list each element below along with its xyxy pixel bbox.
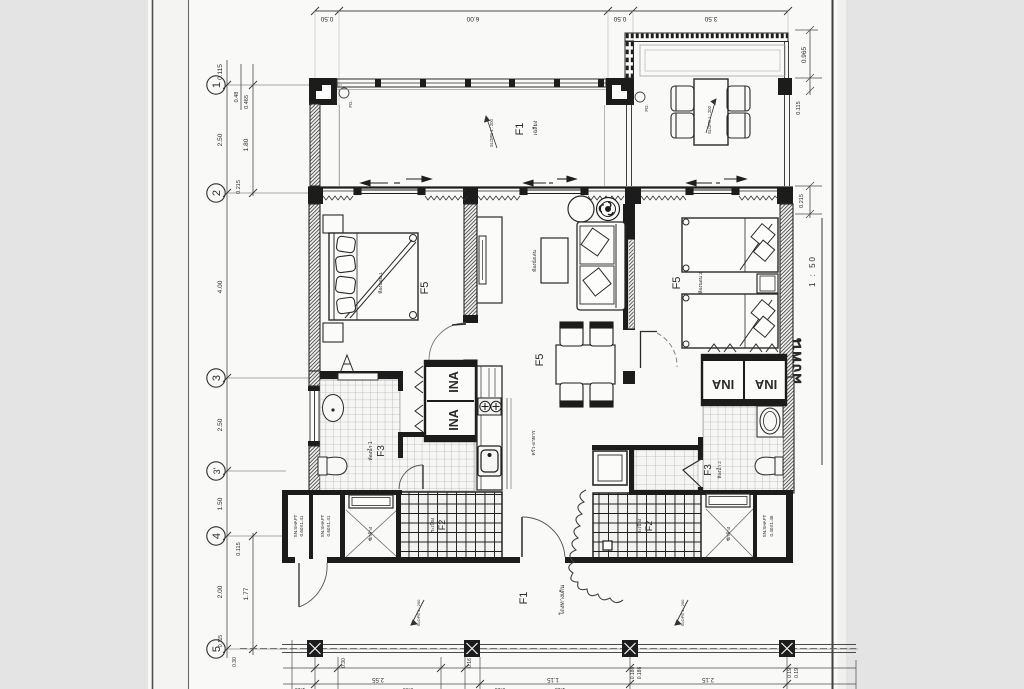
- svg-text:0.215: 0.215: [236, 180, 242, 194]
- svg-text:INA: INA: [754, 377, 777, 392]
- svg-text:SN.SHAFT: SN.SHAFT: [762, 514, 767, 537]
- svg-text:0.215: 0.215: [799, 194, 805, 208]
- svg-text:3.50: 3.50: [704, 15, 717, 22]
- svg-text:0.115: 0.115: [236, 542, 242, 555]
- svg-text:1.77: 1.77: [243, 587, 250, 600]
- svg-text:4.00: 4.00: [217, 280, 224, 293]
- svg-text:2.55: 2.55: [372, 676, 384, 682]
- svg-text:0.60X1.41: 0.60X1.41: [326, 515, 331, 536]
- svg-text:0.30: 0.30: [232, 657, 238, 667]
- svg-text:1 : 50: 1 : 50: [808, 255, 817, 287]
- svg-text:6.00: 6.00: [466, 15, 479, 22]
- svg-text:INA: INA: [711, 377, 734, 392]
- svg-text:SN.SHAFT: SN.SHAFT: [293, 514, 298, 537]
- svg-text:0.115: 0.115: [218, 635, 224, 647]
- svg-text:0.50: 0.50: [613, 15, 626, 22]
- svg-text:ครัว-อาหาร: ครัว-อาหาร: [531, 430, 537, 455]
- svg-text:SN.SHAFT: SN.SHAFT: [320, 514, 325, 537]
- svg-text:F1: F1: [518, 592, 530, 605]
- svg-text:3: 3: [211, 375, 223, 381]
- svg-text:F1: F1: [514, 123, 526, 136]
- svg-text:0.50: 0.50: [320, 15, 333, 22]
- svg-text:โถงทางเดิน: โถงทางเดิน: [558, 585, 566, 615]
- svg-text:SLOPE 1 : 200: SLOPE 1 : 200: [489, 118, 494, 147]
- svg-text:0.115: 0.115: [796, 101, 802, 114]
- svg-text:F5: F5: [671, 277, 683, 290]
- svg-text:ห้องนอน 1: ห้องนอน 1: [377, 272, 384, 294]
- svg-text:FD.: FD.: [348, 100, 353, 107]
- svg-text:ห้องน้ำ 2: ห้องน้ำ 2: [716, 461, 722, 479]
- svg-text:3': 3': [212, 467, 222, 474]
- svg-text:1.15: 1.15: [547, 676, 559, 682]
- svg-text:1: 1: [211, 82, 223, 88]
- svg-text:F5: F5: [419, 282, 431, 295]
- svg-text:0.40X1.45: 0.40X1.45: [769, 515, 774, 536]
- svg-text:SLOPE 1 : 200: SLOPE 1 : 200: [680, 599, 685, 626]
- svg-text:ห้องนอน 2: ห้องนอน 2: [697, 272, 704, 294]
- svg-text:SLOPE 1 : 200: SLOPE 1 : 200: [416, 599, 421, 626]
- svg-text:2.15: 2.15: [702, 676, 714, 682]
- svg-text:0.186: 0.186: [630, 667, 636, 680]
- svg-text:ห้องนั่งเล่น: ห้องนั่งเล่น: [531, 249, 538, 272]
- svg-text:INA: INA: [447, 409, 461, 431]
- svg-text:2.50: 2.50: [217, 133, 224, 146]
- svg-text:F2: F2: [437, 520, 447, 531]
- svg-text:0.48: 0.48: [234, 92, 240, 103]
- svg-text:ซักล้าง: ซักล้าง: [725, 527, 732, 541]
- svg-text:2.50: 2.50: [217, 418, 224, 431]
- svg-text:ซักล้าง: ซักล้าง: [367, 527, 374, 541]
- svg-text:0.115: 0.115: [217, 64, 224, 80]
- svg-text:เฉลียง: เฉลียง: [532, 120, 539, 135]
- svg-text:F5: F5: [534, 354, 546, 367]
- svg-text:0.186: 0.186: [637, 667, 643, 680]
- svg-text:SLOPE 1 : 200: SLOPE 1 : 200: [707, 105, 712, 134]
- svg-text:0.965: 0.965: [801, 46, 808, 63]
- svg-text:4: 4: [211, 533, 223, 539]
- svg-text:ระเบียง: ระเบียง: [636, 519, 642, 533]
- svg-text:0.16: 0.16: [467, 658, 473, 668]
- svg-text:2: 2: [211, 190, 223, 196]
- svg-text:INA: INA: [447, 371, 461, 393]
- svg-text:0.19: 0.19: [794, 668, 800, 678]
- svg-text:0.30: 0.30: [341, 658, 347, 668]
- svg-text:0.19: 0.19: [787, 668, 793, 678]
- svg-text:0.60X1.41: 0.60X1.41: [299, 515, 304, 536]
- svg-text:0.465: 0.465: [244, 95, 250, 109]
- svg-text:FD.: FD.: [644, 104, 649, 111]
- svg-text:ระเบียง: ระเบียง: [429, 518, 435, 532]
- svg-text:1.80: 1.80: [243, 138, 250, 151]
- svg-text:1.50: 1.50: [217, 497, 224, 510]
- svg-text:2.00: 2.00: [217, 585, 224, 598]
- svg-text:F2: F2: [644, 521, 654, 532]
- svg-text:F3: F3: [703, 464, 714, 476]
- svg-text:F3: F3: [376, 445, 387, 457]
